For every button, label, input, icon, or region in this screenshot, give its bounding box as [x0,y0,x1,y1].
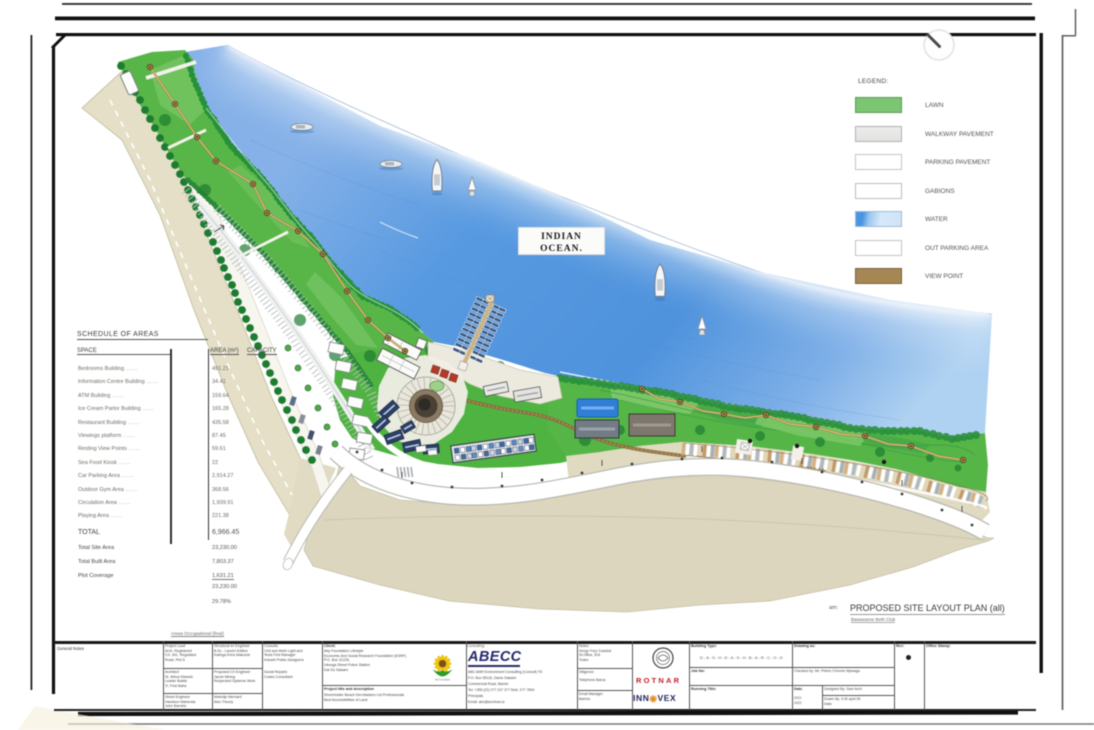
svg-text:Aby Foundation: Aby Foundation [435,678,451,681]
